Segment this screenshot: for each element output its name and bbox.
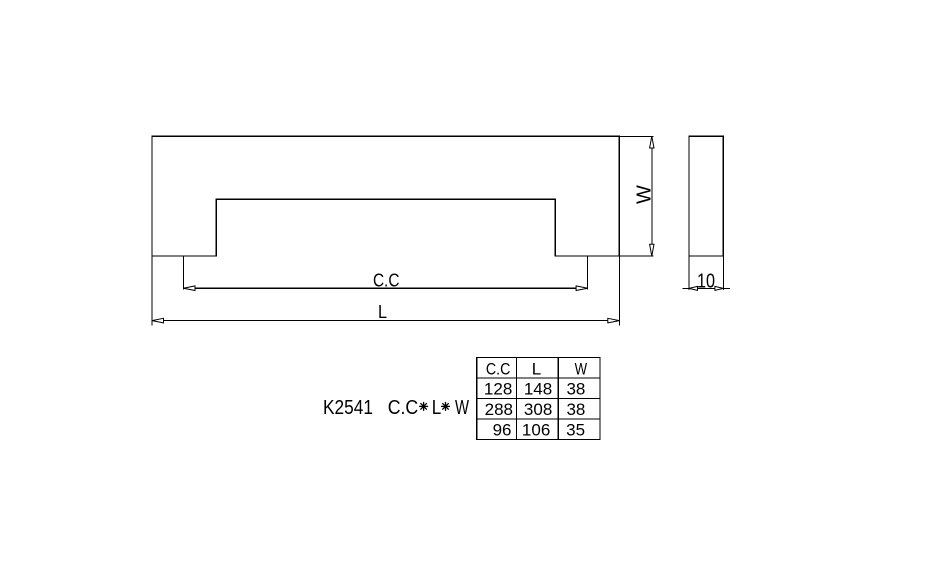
svg-text:L: L bbox=[532, 360, 541, 379]
svg-text:C.C: C.C bbox=[388, 397, 419, 419]
svg-text:W: W bbox=[575, 360, 588, 379]
svg-text:L: L bbox=[432, 397, 442, 419]
svg-text:128: 128 bbox=[484, 380, 512, 399]
svg-text:W: W bbox=[634, 185, 656, 204]
svg-text:35: 35 bbox=[566, 421, 585, 440]
svg-text:C.C: C.C bbox=[486, 360, 511, 379]
svg-text:38: 38 bbox=[566, 400, 585, 419]
svg-text:288: 288 bbox=[485, 400, 513, 419]
svg-text:308: 308 bbox=[524, 400, 552, 419]
svg-text:10: 10 bbox=[697, 271, 715, 293]
svg-text:K2541: K2541 bbox=[323, 397, 373, 419]
svg-text:148: 148 bbox=[524, 380, 552, 399]
svg-text:96: 96 bbox=[493, 421, 512, 440]
svg-text:L: L bbox=[378, 302, 387, 322]
svg-text:38: 38 bbox=[566, 380, 585, 399]
svg-text:W: W bbox=[455, 397, 469, 419]
svg-text:106: 106 bbox=[522, 421, 550, 440]
svg-text:C.C: C.C bbox=[373, 271, 400, 291]
